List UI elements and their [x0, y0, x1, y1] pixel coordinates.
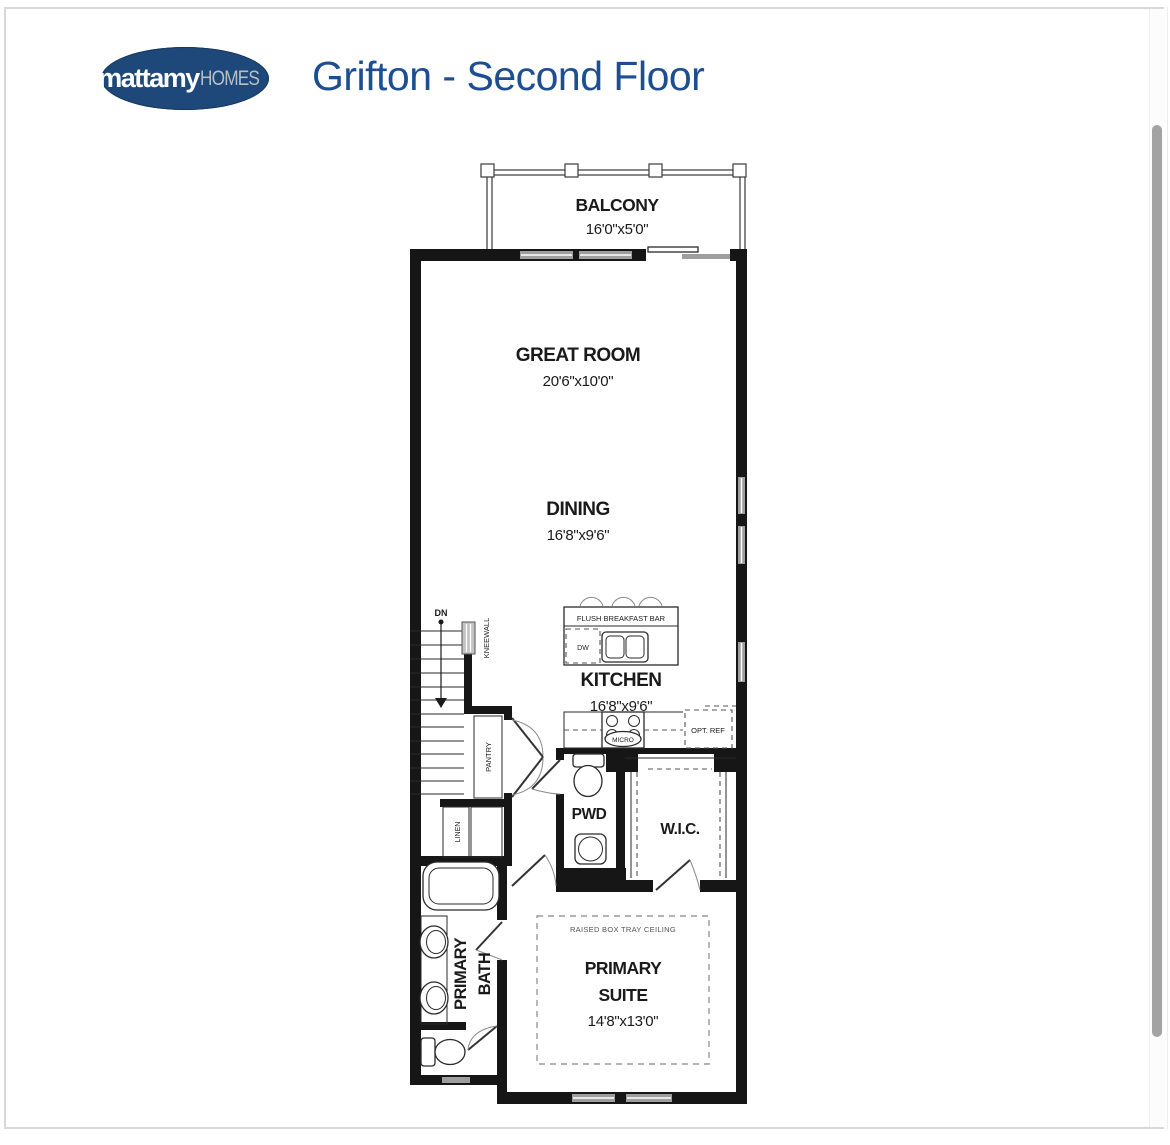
sliding-door-panel — [648, 247, 698, 252]
great-room-label: GREAT ROOM — [516, 345, 640, 366]
great-room-dims: 20'6"x10'0" — [543, 373, 614, 390]
linen-closet — [443, 807, 502, 857]
wic-label: W.I.C. — [660, 821, 699, 838]
primary-suite-dims: 14'8"x13'0" — [588, 1013, 659, 1030]
burner — [629, 716, 640, 727]
primary-suite-door-leaf — [512, 855, 545, 886]
pwd-label: PWD — [572, 806, 607, 823]
sliding-door-panel — [682, 254, 732, 259]
stairs-down-label: DN — [435, 608, 448, 618]
kitchen-island — [564, 597, 678, 665]
primary-suite-label-line2: SUITE — [598, 985, 647, 1005]
kneewall — [462, 622, 475, 654]
floor-plan: BALCONY 16'0"x5'0" GREAT ROOM 20'6"x10'0… — [0, 0, 1170, 1145]
tray-ceiling-label: RAISED BOX TRAY CEILING — [570, 925, 676, 934]
balcony-label: BALCONY — [575, 195, 659, 215]
bar-stool — [639, 597, 662, 606]
linen-label: LINEN — [455, 822, 462, 843]
bar-stool — [580, 597, 603, 606]
opt-ref-label: OPT. REF — [691, 726, 725, 735]
primary-suite-label-line1: PRIMARY — [585, 958, 662, 978]
kitchen-dims: 16'8"x9'6" — [590, 698, 653, 715]
pantry-label: PANTRY — [484, 742, 493, 772]
dishwasher-label: DW — [577, 645, 589, 652]
dining-dims: 16'8"x9'6" — [547, 527, 610, 544]
railing-post — [565, 164, 578, 177]
kitchen-label: KITCHEN — [581, 670, 662, 691]
linen-door — [471, 807, 502, 857]
balcony-dims: 16'0"x5'0" — [586, 221, 649, 238]
railing-post — [733, 164, 746, 177]
pwd-sink — [575, 834, 606, 864]
breakfast-bar-label: FLUSH BREAKFAST BAR — [577, 614, 666, 623]
railing-post — [649, 164, 662, 177]
bar-stool — [612, 597, 635, 606]
primary-bath-label-line1: PRIMARY — [452, 938, 470, 1010]
railing-post — [481, 164, 494, 177]
wc-toilet-bowl — [435, 1040, 465, 1065]
primary-bath-label-line2: BATH — [476, 953, 494, 996]
dining-label: DINING — [546, 499, 610, 520]
toilet-bowl — [574, 766, 602, 797]
water-closet-window — [442, 1077, 470, 1083]
burner — [607, 716, 618, 727]
kneewall-label: KNEEWALL — [482, 618, 491, 659]
wc-toilet-tank — [421, 1038, 435, 1066]
microwave-label: MICRO — [612, 737, 634, 744]
walk-in-closet — [625, 758, 736, 878]
